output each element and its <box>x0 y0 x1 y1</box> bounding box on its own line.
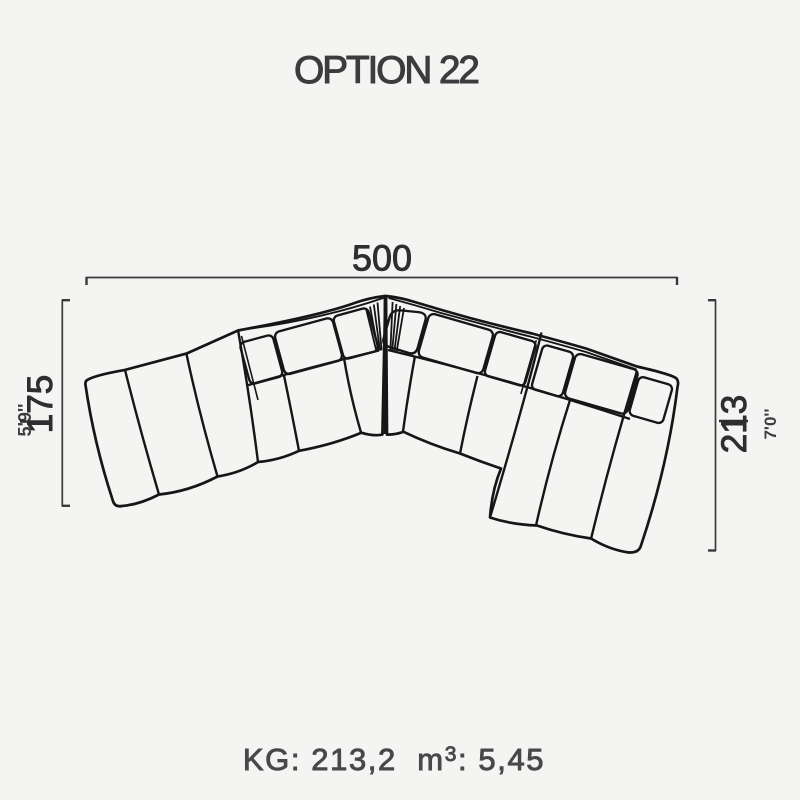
svg-text:5'9'': 5'9'' <box>15 404 35 437</box>
svg-text:OPTION 22: OPTION 22 <box>294 49 480 92</box>
svg-text:213: 213 <box>715 395 754 453</box>
svg-text:KG: 213,2 m3: 5,45: KG: 213,2 m3: 5,45 <box>243 742 545 777</box>
svg-text:7'0'': 7'0'' <box>761 408 780 439</box>
svg-text:500: 500 <box>352 238 412 279</box>
